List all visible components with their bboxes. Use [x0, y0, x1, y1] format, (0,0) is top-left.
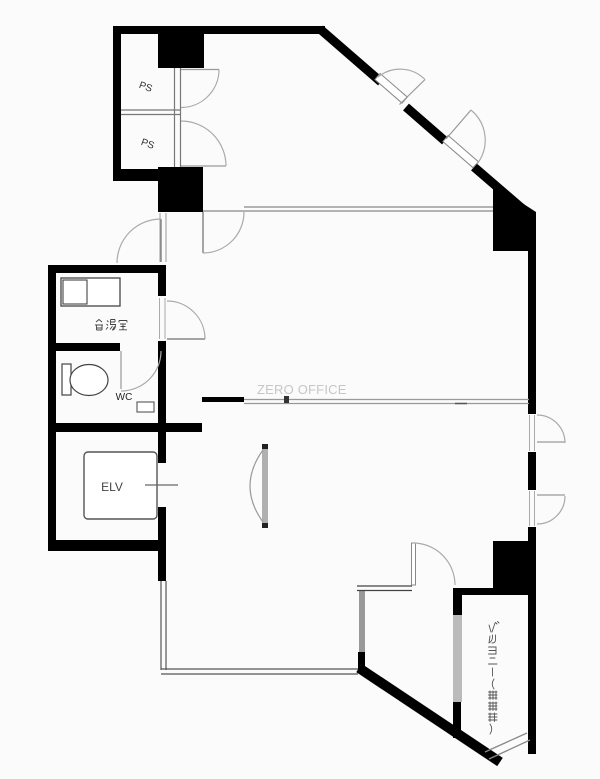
svg-text:ELV: ELV	[101, 480, 123, 494]
svg-text:WC: WC	[116, 392, 133, 403]
svg-text:ZERO OFFICE: ZERO OFFICE	[257, 382, 347, 397]
